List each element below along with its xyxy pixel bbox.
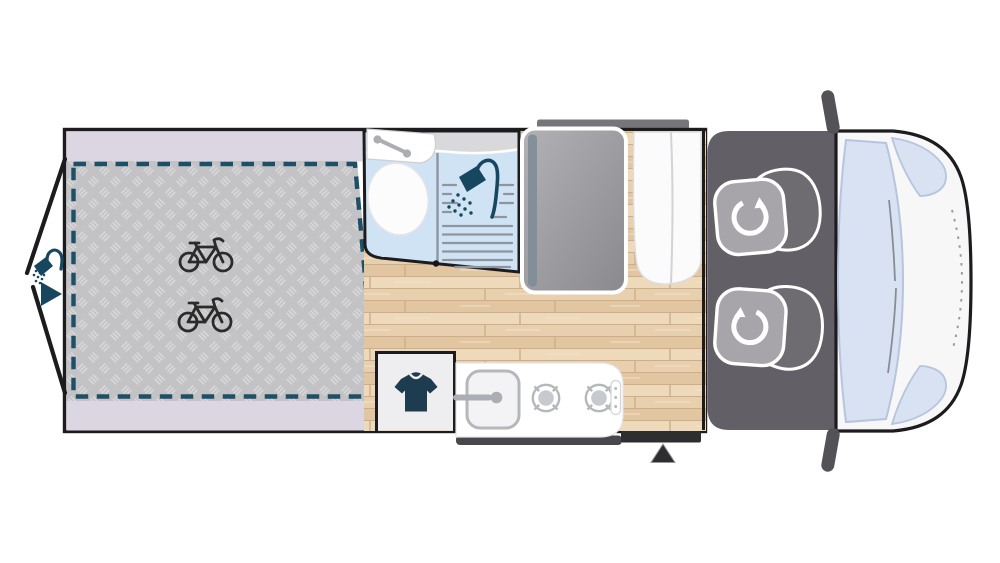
exterior-shower-icon [33,250,62,284]
bathroom [362,129,519,272]
garage-floor [67,161,375,401]
motorhome-floorplan [0,0,1000,563]
garage-trim-top [67,132,363,162]
bathroom-door-hinge [433,260,439,266]
windshield [838,140,903,422]
sofa [633,132,701,284]
rear-door-line [33,287,65,393]
bed-headboard-strip [528,135,537,287]
seat-cushion [713,287,787,367]
floorplan-canvas [0,0,1000,563]
drop-down-bed [522,129,626,293]
rear-doors-open [27,159,65,393]
van-front [820,89,971,472]
passenger-seat [713,282,825,372]
entry-arrow-icon [651,444,675,463]
hob-controls [611,381,621,415]
rear-garage [67,132,375,431]
washbasin [367,129,435,163]
wardrobe [375,352,456,431]
garage-trim-bottom [67,401,375,431]
side-mirror-top [820,89,840,135]
rear-access-arrow-icon [41,282,62,306]
entry-door-band [621,431,701,443]
side-mirror-bottom [820,427,840,473]
kitchen [456,363,623,445]
seat-cushion [713,178,788,257]
